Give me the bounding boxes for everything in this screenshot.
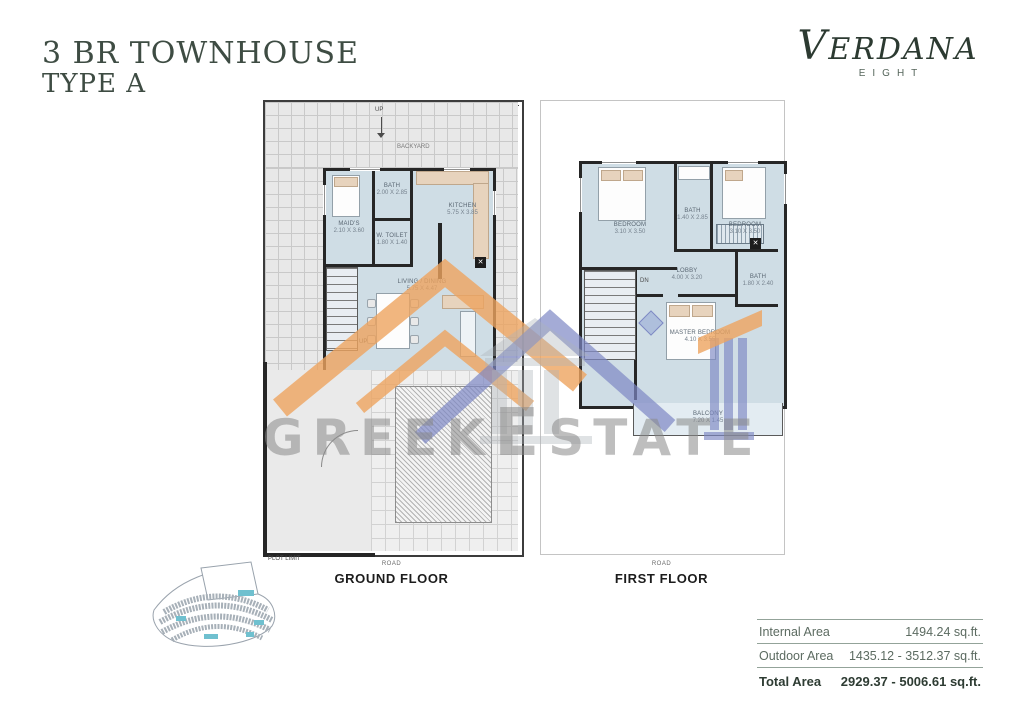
pillow [725,170,743,181]
room-label-bedroom-right: BEDROOM 3.10 X 3.50 [714,222,776,236]
room-label-master-bedroom: MASTER BEDROOM 4.10 X 3.55 [660,330,740,344]
side-tiles-left [265,168,323,370]
ground-road-label: ROAD [263,561,520,567]
area-table: Internal Area 1494.24 sq.ft. Outdoor Are… [757,619,983,693]
wall [674,249,778,252]
area-value: 1435.12 - 3512.37 sq.ft. [849,649,981,663]
service-shaft: ✕ [475,257,486,268]
area-label: Total Area [759,674,821,689]
chair [410,299,419,308]
pillow [669,305,690,317]
stairs-up [326,267,358,351]
wall [438,223,442,279]
kitchen-island [442,295,484,309]
wall [735,304,778,307]
sofa [460,311,476,357]
wall [710,164,713,252]
area-value: 2929.37 - 5006.61 sq.ft. [841,674,981,689]
page-title-line2: TYPE A [42,70,359,98]
page-title-line1: 3 BR TOWNHOUSE [42,38,359,70]
pillow [692,305,713,317]
window [602,161,636,164]
area-value: 1494.24 sq.ft. [905,625,981,639]
area-row-outdoor: Outdoor Area 1435.12 - 3512.37 sq.ft. [757,644,983,668]
room-label-bath-right: BATH 1.80 X 2.40 [740,274,776,288]
area-label: Outdoor Area [759,649,833,663]
patio [371,370,518,551]
wall [372,218,413,221]
room-label-lobby: LOBBY 4.00 X 3.20 [659,268,715,282]
area-label: Internal Area [759,625,830,639]
room-label-kitchen: KITCHEN 5.75 X 3.85 [438,203,487,217]
wall [678,294,738,297]
window [323,185,326,215]
brand-logo: VERDANA EIGHT [782,30,994,79]
area-row-internal: Internal Area 1494.24 sq.ft. [757,619,983,644]
ground-house: UP ✕ MAID'S 2.10 X 3.60 BATH 2.00 X 2.85… [323,168,496,376]
window [579,178,582,212]
pillow [601,170,621,181]
brand-name: VERDANA [782,30,994,66]
room-label-living-dining: LIVING / DINING 5.75 X 4.47 [384,279,460,293]
window [493,191,496,215]
wall [637,294,663,297]
room-label-bedroom-left: BEDROOM 3.10 X 3.50 [588,222,672,236]
stairs-down [584,270,636,360]
pool [395,386,492,523]
first-floor-caption: FIRST FLOOR [540,571,783,586]
room-label-toilet: W. TOILET 1.80 X 1.40 [374,233,410,247]
chair [367,335,376,344]
kitchen-counter [473,183,489,259]
dining-table [376,293,410,349]
wall [735,249,738,307]
stairs-down-label: DN [640,278,649,284]
pillow [623,170,643,181]
up-label: UP [375,107,383,113]
bathtub [678,166,710,180]
ground-floor-caption: GROUND FLOOR [263,571,520,586]
room-label-maids: MAID'S 2.10 X 3.60 [326,221,372,235]
site-map-drawing [146,560,288,655]
window [784,174,787,204]
pillow [334,177,358,187]
first-road-label: ROAD [540,561,783,567]
gate-arc [321,430,358,467]
service-shaft: ✕ [750,238,761,249]
up-arrow-head [377,133,385,138]
chair [367,299,376,308]
ground-floor-plan: UP BACKYARD UP ✕ [263,100,524,557]
backyard-terrace [265,102,518,168]
chair [367,317,376,326]
up-arrow-line [381,117,382,133]
room-label-bath-middle: BATH 1.40 X 2.85 [676,208,709,222]
backyard-label: BACKYARD [397,144,430,150]
chair [410,317,419,326]
area-row-total: Total Area 2929.37 - 5006.61 sq.ft. [757,668,983,693]
balcony: BALCONY 7.20 X 1.45 [633,403,783,436]
boundary-wall [263,362,267,553]
first-floor-plan: DN ✕ BEDROOM 3.10 X 3.50 BATH 1.40 X 2.8… [540,100,785,555]
window [728,161,758,164]
site-map [146,560,288,655]
room-label-balcony: BALCONY 7.20 X 1.45 [634,411,782,425]
driveway [265,370,371,551]
chair [410,335,419,344]
first-house: DN ✕ BEDROOM 3.10 X 3.50 BATH 1.40 X 2.8… [579,161,787,409]
window [350,168,380,171]
page-title: 3 BR TOWNHOUSE TYPE A [42,38,359,98]
room-label-bath: BATH 2.00 X 2.85 [374,183,410,197]
brand-subtitle: EIGHT [782,68,994,79]
wall [372,264,413,267]
